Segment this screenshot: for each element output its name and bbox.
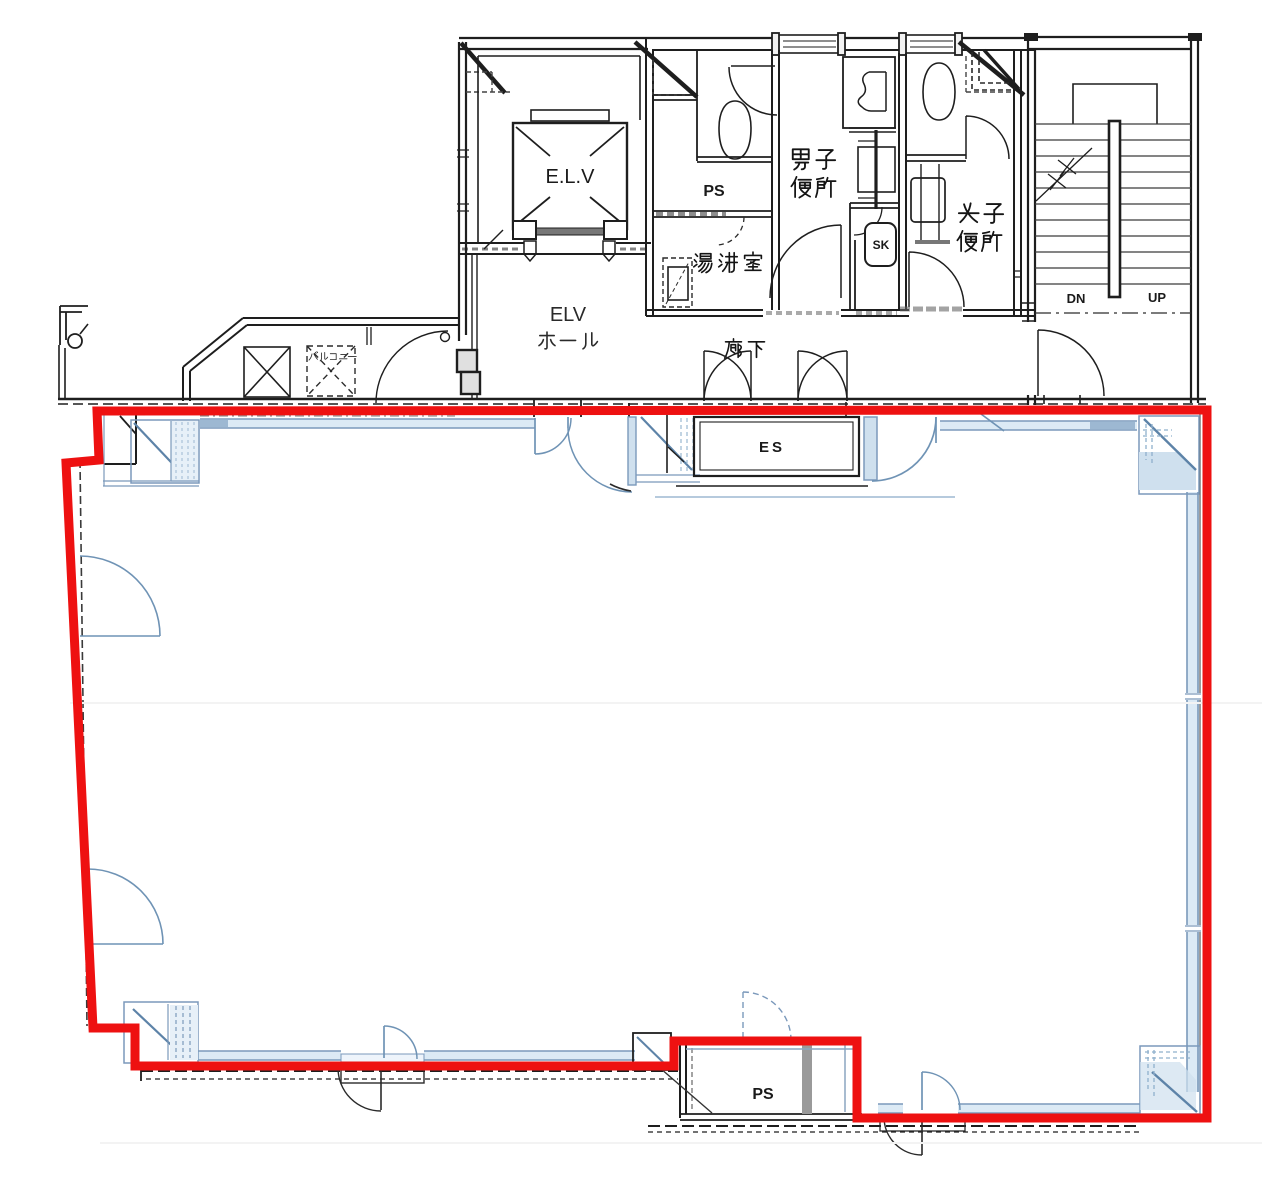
svg-text:E.L.V: E.L.V xyxy=(546,166,596,188)
svg-text:ES: ES xyxy=(759,439,785,456)
svg-text:SK: SK xyxy=(873,238,890,252)
svg-text:PS: PS xyxy=(752,1086,774,1103)
svg-text:PS: PS xyxy=(703,183,725,200)
svg-text:ELV: ELV xyxy=(550,304,587,326)
svg-text:DN: DN xyxy=(1067,291,1086,306)
svg-text:UP: UP xyxy=(1148,290,1166,305)
